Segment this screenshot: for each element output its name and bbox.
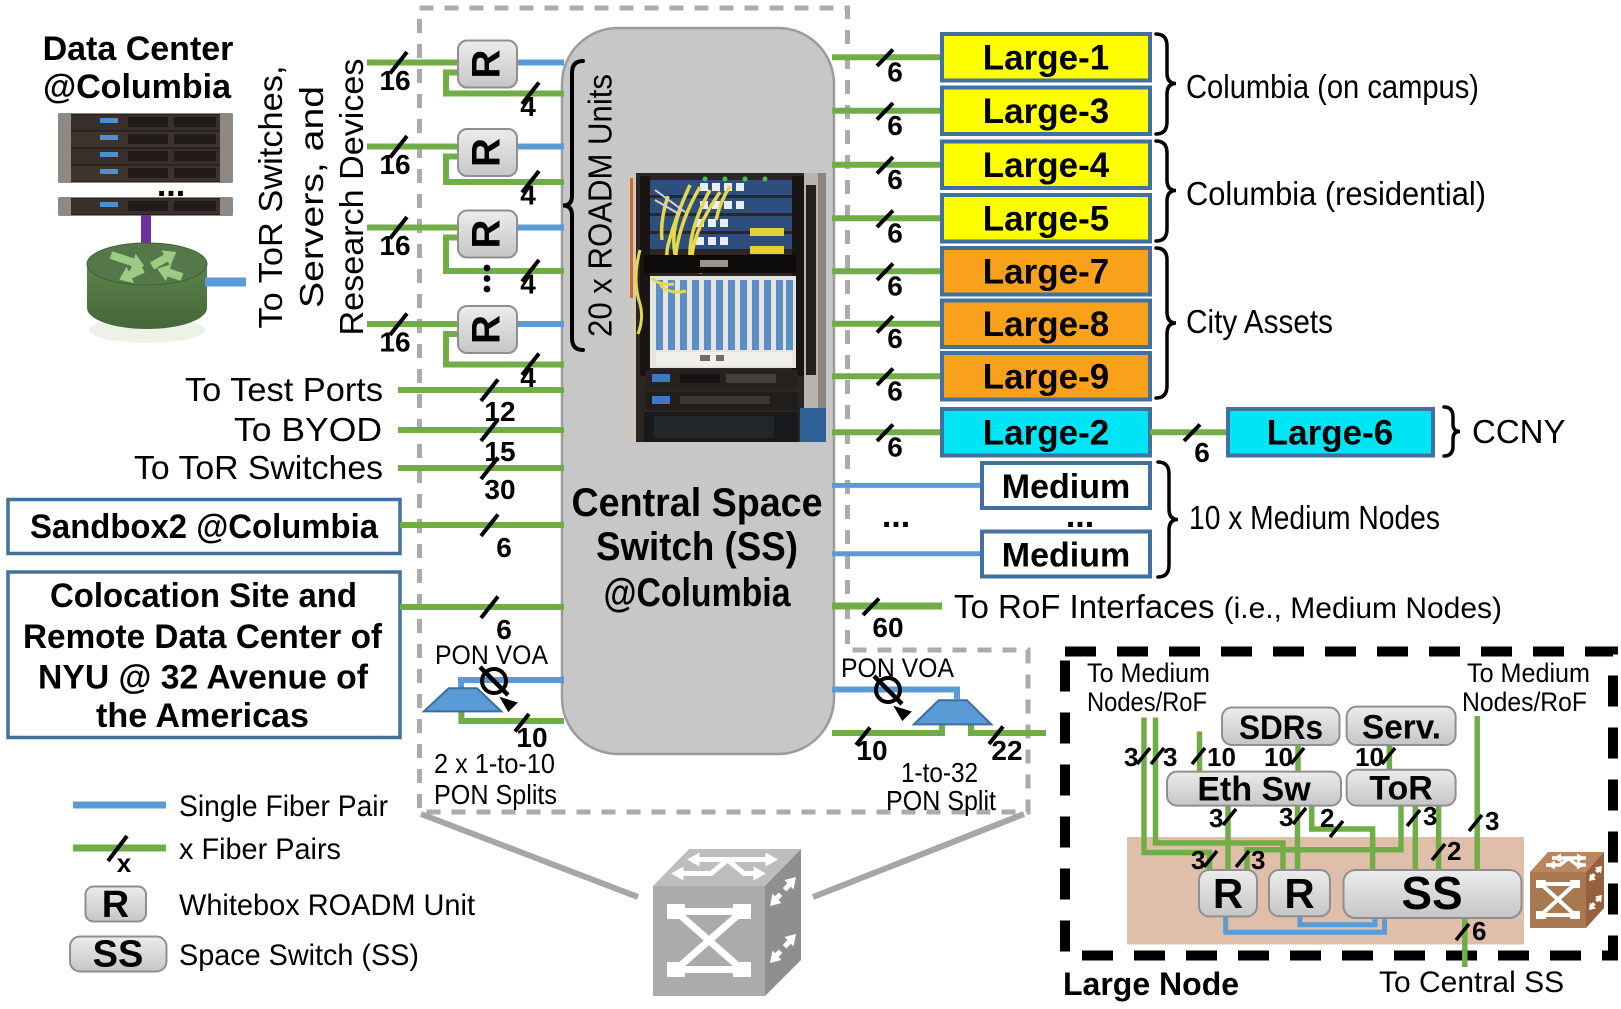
svg-text:To ToR Switches: To ToR Switches [134,449,383,486]
svg-text:3: 3 [1191,845,1205,875]
svg-text:3: 3 [1124,742,1138,772]
svg-text:CCNY: CCNY [1472,413,1566,450]
svg-text:...: ... [882,497,910,535]
svg-text:6: 6 [887,57,903,88]
svg-text:Large-8: Large-8 [983,305,1109,344]
svg-text:60: 60 [872,612,903,643]
svg-text:3: 3 [1279,802,1293,832]
svg-text:Whitebox ROADM Unit: Whitebox ROADM Unit [179,889,476,922]
svg-text:Large Node: Large Node [1063,966,1239,1002]
svg-text:Remote Data Center of: Remote Data Center of [23,618,383,656]
svg-text:3: 3 [1251,845,1265,875]
svg-text:Space Switch (SS): Space Switch (SS) [179,939,419,972]
svg-text:Columbia (on campus): Columbia (on campus) [1186,68,1479,105]
svg-text:Large-6: Large-6 [1267,414,1393,453]
svg-text:Large-7: Large-7 [983,253,1109,292]
svg-text:30: 30 [484,474,515,505]
svg-text:3: 3 [1163,742,1177,772]
svg-text:Data Center: Data Center [43,30,234,68]
svg-text:Single Fiber Pair: Single Fiber Pair [179,790,388,823]
svg-text:6: 6 [887,271,903,302]
svg-text:Serv.: Serv. [1362,709,1441,747]
svg-text:10: 10 [856,735,887,766]
svg-text:4: 4 [520,269,536,300]
svg-text:20 x ROADM Units: 20 x ROADM Units [582,74,619,337]
svg-text:SS: SS [1401,867,1462,919]
svg-text:PON VOA: PON VOA [841,653,954,683]
svg-text:Nodes/RoF: Nodes/RoF [1087,687,1207,717]
svg-text:3: 3 [1423,801,1437,831]
svg-text:Switch (SS): Switch (SS) [596,525,798,569]
svg-text:R: R [465,138,509,167]
svg-text:16: 16 [379,149,410,180]
svg-text:22: 22 [991,735,1022,766]
svg-text:Colocation Site and: Colocation Site and [50,577,357,615]
svg-text:Research Devices: Research Devices [333,59,370,336]
svg-text:Sandbox2 @Columbia: Sandbox2 @Columbia [30,508,379,546]
svg-text:16: 16 [379,230,410,261]
svg-text:Large-4: Large-4 [983,146,1110,185]
svg-text:To Medium: To Medium [1087,658,1210,688]
svg-text:Large-5: Large-5 [983,200,1109,239]
svg-text:Central Space: Central Space [572,481,823,525]
svg-text:Large-9: Large-9 [983,358,1109,397]
svg-text:x Fiber Pairs: x Fiber Pairs [179,833,341,866]
svg-text:PON VOA: PON VOA [435,640,548,670]
svg-text:10 x Medium Nodes: 10 x Medium Nodes [1189,499,1440,536]
svg-text:Large-2: Large-2 [983,414,1109,453]
svg-text:16: 16 [379,327,410,358]
svg-text:Large-3: Large-3 [983,92,1109,131]
svg-text:PON Splits: PON Splits [434,779,557,810]
svg-text:2 x 1-to-10: 2 x 1-to-10 [434,748,555,779]
svg-text:6: 6 [887,376,903,407]
svg-text:City Assets: City Assets [1186,303,1333,340]
svg-text:4: 4 [520,180,536,211]
svg-text:6: 6 [887,432,903,463]
svg-text:3: 3 [1485,806,1499,836]
svg-text:R: R [465,219,509,248]
svg-text:6: 6 [887,218,903,249]
svg-text:15: 15 [484,436,515,467]
svg-text:To Medium: To Medium [1467,658,1590,688]
svg-text:6: 6 [887,323,903,354]
svg-text:@Columbia: @Columbia [604,571,792,615]
svg-text:10: 10 [1355,742,1384,772]
svg-text:SS: SS [93,934,144,976]
svg-text:To ToR Switches,: To ToR Switches, [252,66,289,329]
svg-text:10: 10 [1207,742,1236,772]
svg-text:1-to-32: 1-to-32 [901,757,978,788]
svg-text:...: ... [1066,497,1094,535]
svg-text:x: x [117,848,132,878]
svg-text:2: 2 [1447,836,1461,866]
svg-text:To Test Ports: To Test Ports [185,371,383,408]
svg-text:Nodes/RoF: Nodes/RoF [1462,687,1587,717]
svg-text:Medium: Medium [1002,537,1130,575]
svg-text:R: R [102,884,129,926]
svg-text:@Columbia: @Columbia [43,68,232,106]
svg-text:R: R [465,49,509,78]
svg-text:R: R [465,315,509,344]
svg-text:R: R [1213,870,1243,917]
svg-text:To Central SS: To Central SS [1379,966,1564,999]
svg-text:12: 12 [484,396,515,427]
svg-text:Large-1: Large-1 [983,39,1109,78]
svg-text:6: 6 [496,532,512,563]
svg-text:6: 6 [1194,437,1210,468]
svg-text:2: 2 [1320,803,1334,833]
svg-text:To RoF Interfaces (i.e., Mediu: To RoF Interfaces (i.e., Medium Nodes) [954,588,1502,625]
svg-text:the Americas: the Americas [96,697,309,735]
svg-text:6: 6 [1472,916,1486,946]
svg-text:6: 6 [887,164,903,195]
svg-text:NYU @ 32 Avenue of: NYU @ 32 Avenue of [38,659,369,697]
svg-text:3: 3 [1209,803,1223,833]
svg-text:PON Split: PON Split [886,785,996,816]
svg-text:6: 6 [887,110,903,141]
svg-text:4: 4 [520,91,536,122]
svg-text:10: 10 [1264,742,1293,772]
svg-text:R: R [1284,870,1314,917]
svg-text:16: 16 [379,65,410,96]
svg-text:Columbia (residential): Columbia (residential) [1186,175,1486,212]
svg-text:Servers, and: Servers, and [293,86,330,308]
svg-text:To BYOD: To BYOD [234,411,382,448]
